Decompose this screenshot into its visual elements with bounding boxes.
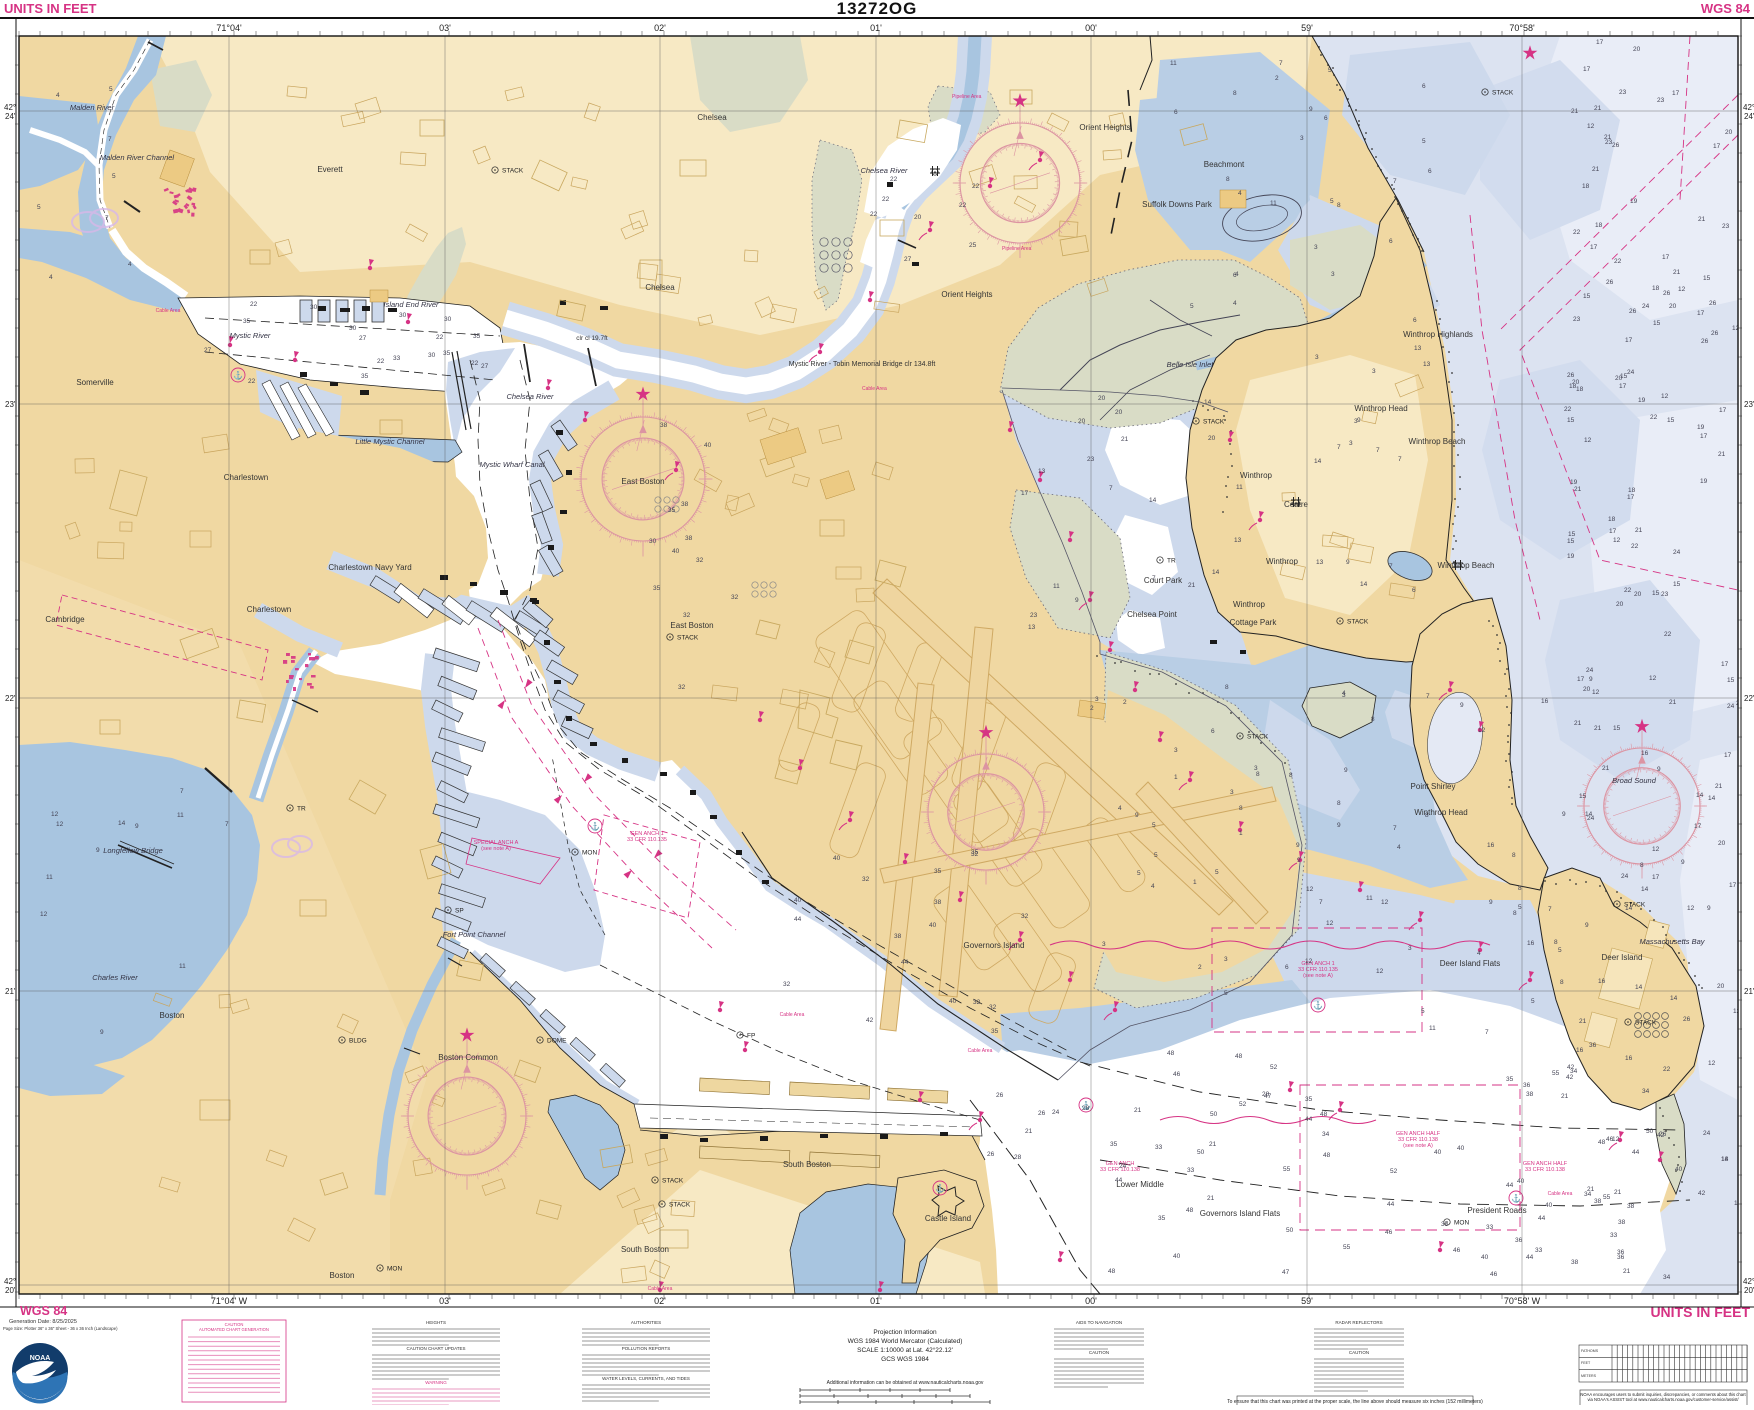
svg-text:15: 15 — [1703, 275, 1711, 282]
svg-text:8: 8 — [1513, 910, 1517, 917]
svg-text:12: 12 — [1592, 689, 1600, 696]
svg-text:6: 6 — [1428, 168, 1432, 175]
svg-text:7: 7 — [1389, 563, 1393, 570]
svg-text:28: 28 — [1262, 1091, 1270, 1098]
svg-text:16: 16 — [1641, 750, 1649, 757]
svg-text:7: 7 — [1398, 456, 1402, 463]
svg-text:FEET: FEET — [1581, 1361, 1591, 1365]
svg-text:Orient Heights: Orient Heights — [1079, 123, 1130, 132]
svg-text:40: 40 — [1545, 1202, 1553, 1209]
svg-text:33: 33 — [1610, 1232, 1618, 1239]
svg-text:19: 19 — [1697, 424, 1705, 431]
svg-text:02': 02' — [654, 23, 666, 33]
svg-text:24: 24 — [1052, 1109, 1060, 1116]
svg-text:9: 9 — [1489, 899, 1493, 906]
svg-text:46: 46 — [1173, 1071, 1181, 1078]
svg-text:Winthrop Head: Winthrop Head — [1414, 808, 1467, 817]
svg-text:12: 12 — [1478, 727, 1486, 734]
svg-text:32: 32 — [783, 981, 791, 988]
svg-text:16: 16 — [1625, 1055, 1633, 1062]
svg-text:3: 3 — [1331, 271, 1335, 278]
svg-text:36: 36 — [1515, 1237, 1523, 1244]
svg-text:40: 40 — [929, 922, 937, 929]
svg-text:33: 33 — [1486, 1224, 1494, 1231]
svg-text:22': 22' — [5, 694, 16, 703]
svg-text:13: 13 — [1028, 624, 1036, 631]
svg-text:40: 40 — [672, 548, 680, 555]
svg-text:7: 7 — [1426, 693, 1430, 700]
svg-text:2: 2 — [1198, 964, 1202, 971]
svg-text:18: 18 — [1595, 222, 1603, 229]
svg-text:14: 14 — [1696, 792, 1704, 799]
svg-text:26: 26 — [1663, 290, 1671, 297]
svg-text:40: 40 — [794, 897, 802, 904]
svg-text:38: 38 — [1571, 1259, 1579, 1266]
svg-text:STACK: STACK — [1247, 734, 1269, 741]
svg-text:22: 22 — [471, 360, 479, 367]
svg-text:9: 9 — [1296, 842, 1300, 849]
svg-text:42°: 42° — [1743, 1277, 1754, 1286]
svg-text:7: 7 — [1485, 1029, 1489, 1036]
svg-text:15: 15 — [1667, 417, 1675, 424]
svg-text:21: 21 — [1574, 720, 1582, 727]
svg-text:Cottage Park: Cottage Park — [1230, 618, 1278, 627]
svg-text:4: 4 — [1151, 883, 1155, 890]
svg-text:STACK: STACK — [677, 635, 699, 642]
svg-text:22: 22 — [1650, 414, 1658, 421]
svg-text:8: 8 — [1226, 176, 1230, 183]
svg-text:Governors Island: Governors Island — [964, 941, 1025, 950]
svg-text:STACK: STACK — [1635, 1020, 1657, 1027]
svg-text:17: 17 — [1619, 383, 1627, 390]
svg-text:4: 4 — [1238, 190, 1242, 197]
svg-text:14: 14 — [1149, 497, 1157, 504]
svg-text:38: 38 — [894, 933, 902, 940]
svg-text:23: 23 — [1605, 139, 1613, 146]
svg-text:AUTOMATED CHART GENERATION: AUTOMATED CHART GENERATION — [199, 1327, 269, 1332]
svg-text:20: 20 — [1725, 129, 1733, 136]
svg-text:9: 9 — [135, 823, 139, 830]
svg-text:STACK: STACK — [1203, 419, 1225, 426]
svg-text:33: 33 — [1187, 1167, 1195, 1174]
svg-text:Pipeline Area: Pipeline Area — [1002, 246, 1032, 252]
svg-text:1: 1 — [1174, 774, 1178, 781]
svg-text:9: 9 — [96, 847, 100, 854]
svg-text:9: 9 — [1589, 676, 1593, 683]
svg-text:21: 21 — [1715, 783, 1723, 790]
svg-text:35: 35 — [473, 333, 481, 340]
svg-text:3: 3 — [1224, 956, 1228, 963]
svg-text:22: 22 — [870, 211, 878, 218]
svg-text:35: 35 — [934, 868, 942, 875]
svg-text:42°: 42° — [4, 103, 16, 112]
svg-text:POLLUTION REPORTS: POLLUTION REPORTS — [622, 1346, 670, 1351]
svg-text:⚓: ⚓ — [935, 1183, 945, 1193]
svg-text:24': 24' — [1744, 112, 1754, 121]
svg-text:55: 55 — [1552, 1070, 1560, 1077]
svg-text:32: 32 — [678, 684, 686, 691]
svg-text:3: 3 — [1300, 135, 1304, 142]
svg-text:WGS 84: WGS 84 — [1701, 1, 1751, 16]
svg-text:8: 8 — [1289, 772, 1293, 779]
svg-text:6: 6 — [1233, 272, 1237, 279]
svg-text:Boston: Boston — [330, 1271, 355, 1280]
svg-text:⚓: ⚓ — [1511, 1193, 1521, 1203]
svg-text:5: 5 — [1531, 998, 1535, 1005]
svg-text:32: 32 — [1021, 913, 1029, 920]
svg-text:52: 52 — [1270, 1064, 1278, 1071]
svg-text:18: 18 — [1628, 487, 1636, 494]
svg-text:21: 21 — [1673, 269, 1681, 276]
svg-text:GCS WGS 1984: GCS WGS 1984 — [881, 1356, 929, 1363]
svg-text:21: 21 — [1718, 451, 1726, 458]
svg-text:5: 5 — [1328, 67, 1332, 74]
svg-text:Winthrop: Winthrop — [1233, 600, 1266, 609]
svg-text:15: 15 — [1583, 293, 1591, 300]
svg-text:4: 4 — [1477, 950, 1481, 957]
svg-text:13: 13 — [1414, 345, 1422, 352]
svg-text:55: 55 — [1603, 1194, 1611, 1201]
svg-text:Winthrop: Winthrop — [1266, 557, 1299, 566]
svg-text:22: 22 — [1573, 229, 1581, 236]
svg-text:21: 21 — [1207, 1195, 1215, 1202]
svg-text:8: 8 — [1337, 800, 1341, 807]
svg-text:01': 01' — [870, 23, 882, 33]
svg-text:24: 24 — [1642, 303, 1650, 310]
svg-text:20: 20 — [1098, 395, 1106, 402]
svg-text:36: 36 — [1617, 1254, 1625, 1261]
svg-text:23: 23 — [1573, 316, 1581, 323]
svg-text:19: 19 — [1567, 553, 1575, 560]
svg-text:Chelsea: Chelsea — [697, 113, 727, 122]
svg-text:9: 9 — [1562, 811, 1566, 818]
svg-text:22: 22 — [1631, 543, 1639, 550]
svg-text:14: 14 — [1670, 995, 1678, 1002]
svg-text:17: 17 — [1577, 676, 1585, 683]
svg-text:35: 35 — [361, 373, 369, 380]
svg-text:6: 6 — [1324, 115, 1328, 122]
svg-text:East Boston: East Boston — [621, 477, 664, 486]
svg-text:17: 17 — [1672, 90, 1680, 97]
svg-text:9: 9 — [1297, 857, 1301, 864]
svg-text:clr cl 19.7ft: clr cl 19.7ft — [576, 335, 608, 342]
svg-text:2: 2 — [1090, 705, 1094, 712]
svg-text:Orient Heights: Orient Heights — [941, 290, 992, 299]
svg-text:70°58' W: 70°58' W — [1504, 1296, 1541, 1306]
svg-text:via NOAA's ASSIST tool at www.: via NOAA's ASSIST tool at www.nauticalch… — [1587, 1397, 1739, 1402]
svg-text:23': 23' — [1744, 400, 1754, 409]
svg-text:11: 11 — [177, 812, 184, 819]
svg-text:Mystic River: Mystic River — [230, 331, 271, 340]
svg-text:⚓: ⚓ — [233, 370, 243, 380]
svg-text:Winthrop Beach: Winthrop Beach — [1409, 437, 1466, 446]
svg-text:WARNING: WARNING — [425, 1380, 447, 1385]
svg-text:Generation Date: 8/25/2025: Generation Date: 8/25/2025 — [9, 1319, 77, 1325]
svg-text:4: 4 — [49, 274, 53, 281]
svg-text:52: 52 — [1239, 1101, 1247, 1108]
svg-text:12: 12 — [1587, 123, 1595, 130]
svg-text:17: 17 — [1700, 433, 1708, 440]
svg-text:16: 16 — [1598, 978, 1606, 985]
svg-text:40: 40 — [1675, 1166, 1683, 1173]
svg-text:14: 14 — [1314, 458, 1322, 465]
svg-text:5: 5 — [1422, 138, 1426, 145]
svg-text:Additional information can be: Additional information can be obtained a… — [827, 1380, 984, 1386]
svg-text:21': 21' — [5, 987, 16, 996]
svg-text:AUTHORITIES: AUTHORITIES — [631, 1320, 661, 1325]
svg-text:13: 13 — [1316, 559, 1324, 566]
svg-text:18: 18 — [1608, 516, 1616, 523]
svg-text:34: 34 — [1322, 1131, 1330, 1138]
svg-text:26: 26 — [987, 1151, 995, 1158]
svg-text:6: 6 — [1285, 964, 1289, 971]
svg-text:Charlestown: Charlestown — [224, 473, 268, 482]
svg-text:AIDS TO NAVIGATION: AIDS TO NAVIGATION — [1076, 1320, 1122, 1325]
svg-text:20: 20 — [914, 214, 922, 221]
svg-text:21: 21 — [1561, 1093, 1569, 1100]
svg-text:16: 16 — [1576, 1047, 1584, 1054]
svg-text:23: 23 — [1661, 591, 1669, 598]
svg-text:3: 3 — [1230, 789, 1234, 796]
svg-text:34: 34 — [1663, 1274, 1671, 1281]
svg-text:5: 5 — [109, 86, 113, 93]
svg-text:WGS 84: WGS 84 — [20, 1304, 67, 1318]
svg-text:Belle Isle Inlet: Belle Isle Inlet — [1167, 360, 1215, 369]
svg-text:4: 4 — [1118, 805, 1122, 812]
svg-text:STACK: STACK — [1492, 90, 1514, 97]
svg-text:22: 22 — [890, 176, 898, 183]
svg-text:17: 17 — [1729, 882, 1737, 889]
svg-text:RADAR REFLECTORS: RADAR REFLECTORS — [1335, 1320, 1382, 1325]
svg-text:2: 2 — [1275, 75, 1279, 82]
svg-text:15: 15 — [1653, 320, 1661, 327]
svg-text:17: 17 — [1652, 874, 1660, 881]
svg-text:9: 9 — [1337, 822, 1341, 829]
svg-text:20: 20 — [1633, 46, 1641, 53]
svg-text:33: 33 — [393, 355, 401, 362]
svg-text:CAUTION: CAUTION — [1349, 1350, 1369, 1355]
svg-text:7: 7 — [1279, 60, 1283, 67]
svg-text:23: 23 — [1030, 612, 1038, 619]
svg-text:27: 27 — [204, 347, 212, 354]
svg-text:19: 19 — [1630, 198, 1638, 205]
svg-text:17: 17 — [1724, 752, 1732, 759]
svg-text:38: 38 — [934, 899, 942, 906]
svg-text:Charlestown Navy Yard: Charlestown Navy Yard — [328, 563, 411, 572]
svg-text:40: 40 — [1434, 1149, 1442, 1156]
svg-text:9: 9 — [1075, 597, 1079, 604]
svg-text:13: 13 — [1423, 361, 1431, 368]
svg-text:14: 14 — [1708, 795, 1716, 802]
svg-text:7: 7 — [180, 788, 184, 795]
svg-text:26: 26 — [1659, 1131, 1667, 1138]
svg-text:TR: TR — [1167, 558, 1176, 565]
svg-text:21: 21 — [1602, 765, 1610, 772]
svg-text:MON: MON — [1454, 1220, 1469, 1227]
svg-text:15: 15 — [1567, 417, 1575, 424]
svg-text:02': 02' — [654, 1296, 666, 1306]
svg-text:38: 38 — [1594, 1198, 1602, 1205]
svg-text:5: 5 — [1215, 869, 1219, 876]
svg-text:8: 8 — [1554, 939, 1558, 946]
svg-text:8: 8 — [1256, 771, 1260, 778]
svg-text:17: 17 — [1721, 661, 1729, 668]
svg-text:33 CFR 110.135: 33 CFR 110.135 — [627, 837, 667, 843]
svg-text:FP: FP — [747, 1033, 755, 1040]
svg-text:7: 7 — [1376, 447, 1380, 454]
svg-text:8: 8 — [1560, 979, 1564, 986]
svg-text:24': 24' — [5, 112, 16, 121]
svg-text:22: 22 — [1663, 1066, 1671, 1073]
svg-text:17: 17 — [1713, 143, 1721, 150]
svg-text:NOAA: NOAA — [30, 1355, 51, 1362]
svg-text:21: 21 — [1025, 1128, 1033, 1135]
svg-text:38: 38 — [681, 501, 689, 508]
svg-text:11: 11 — [179, 963, 186, 970]
svg-text:24: 24 — [1673, 549, 1681, 556]
svg-text:STACK: STACK — [662, 1178, 684, 1185]
svg-text:UNITS IN FEET: UNITS IN FEET — [1650, 1304, 1750, 1320]
svg-text:26: 26 — [1038, 1110, 1046, 1117]
svg-text:19: 19 — [1638, 397, 1646, 404]
svg-text:17: 17 — [1583, 66, 1591, 73]
svg-text:Winthrop: Winthrop — [1240, 471, 1273, 480]
svg-text:46: 46 — [1453, 1247, 1461, 1254]
svg-text:12: 12 — [1687, 905, 1695, 912]
svg-text:5: 5 — [1421, 1008, 1425, 1015]
svg-text:01': 01' — [870, 1296, 882, 1306]
svg-text:71°04': 71°04' — [216, 23, 242, 33]
svg-text:12: 12 — [1612, 1136, 1620, 1143]
svg-text:(see note A): (see note A) — [1303, 973, 1333, 979]
svg-text:Winthrop Head: Winthrop Head — [1354, 404, 1407, 413]
svg-text:22: 22 — [1624, 587, 1632, 594]
svg-text:46: 46 — [1385, 1229, 1393, 1236]
svg-text:13: 13 — [1234, 537, 1242, 544]
svg-text:50: 50 — [1197, 1149, 1205, 1156]
svg-text:5: 5 — [112, 173, 116, 180]
svg-text:11: 11 — [1053, 583, 1060, 590]
svg-text:Cable Area: Cable Area — [780, 1012, 805, 1018]
svg-text:17: 17 — [1662, 254, 1670, 261]
svg-text:9: 9 — [1707, 905, 1711, 912]
svg-text:47: 47 — [1282, 1269, 1290, 1276]
svg-text:55: 55 — [1283, 1166, 1291, 1173]
svg-text:26: 26 — [1701, 338, 1709, 345]
svg-text:STACK: STACK — [669, 1202, 691, 1209]
svg-text:35: 35 — [1305, 1096, 1313, 1103]
svg-text:20': 20' — [5, 1286, 16, 1295]
svg-text:Longfellow Bridge: Longfellow Bridge — [103, 846, 163, 855]
svg-text:44: 44 — [1387, 1201, 1395, 1208]
svg-text:Deer Island Flats: Deer Island Flats — [1440, 959, 1500, 968]
svg-text:(see note A): (see note A) — [1403, 1143, 1433, 1149]
svg-text:⚓: ⚓ — [1313, 1000, 1323, 1010]
svg-text:Chelsea Point: Chelsea Point — [1127, 610, 1178, 619]
svg-text:5: 5 — [1330, 198, 1334, 205]
svg-text:20: 20 — [1115, 409, 1123, 416]
svg-text:32: 32 — [862, 876, 870, 883]
svg-text:3: 3 — [1315, 354, 1319, 361]
svg-text:9: 9 — [1344, 767, 1348, 774]
svg-text:16: 16 — [1541, 698, 1549, 705]
svg-text:17: 17 — [1590, 244, 1598, 251]
svg-text:23: 23 — [1722, 223, 1730, 230]
svg-text:44: 44 — [1305, 1116, 1313, 1123]
svg-text:Chelsea River: Chelsea River — [860, 166, 908, 175]
svg-text:11: 11 — [1170, 60, 1177, 67]
svg-text:22: 22 — [250, 301, 258, 308]
svg-text:7: 7 — [105, 215, 109, 222]
svg-text:2: 2 — [1123, 699, 1127, 706]
svg-text:Boston Common: Boston Common — [438, 1053, 498, 1062]
svg-text:26: 26 — [1612, 142, 1620, 149]
svg-text:1: 1 — [1239, 830, 1243, 837]
svg-text:4: 4 — [128, 261, 132, 268]
svg-text:21: 21 — [1574, 486, 1582, 493]
svg-text:44: 44 — [1632, 1149, 1640, 1156]
svg-text:28: 28 — [1082, 1105, 1090, 1112]
svg-text:3: 3 — [1102, 941, 1106, 948]
svg-text:18: 18 — [1576, 386, 1584, 393]
svg-text:22: 22 — [248, 378, 256, 385]
svg-text:Projection Information: Projection Information — [873, 1329, 937, 1336]
svg-text:14: 14 — [1360, 581, 1368, 588]
svg-text:27: 27 — [904, 256, 912, 263]
svg-text:14: 14 — [1212, 569, 1220, 576]
svg-text:19: 19 — [1570, 479, 1578, 486]
svg-text:21: 21 — [1635, 527, 1643, 534]
svg-text:14: 14 — [1625, 905, 1633, 912]
svg-text:East Boston: East Boston — [670, 621, 713, 630]
svg-text:21: 21 — [1614, 1189, 1622, 1196]
svg-text:48: 48 — [1320, 1111, 1328, 1118]
svg-text:Malden River Channel: Malden River Channel — [100, 153, 175, 162]
svg-text:17: 17 — [1625, 337, 1633, 344]
svg-text:14: 14 — [1641, 886, 1649, 893]
svg-text:48: 48 — [1235, 1053, 1243, 1060]
svg-text:9: 9 — [1346, 559, 1350, 566]
svg-text:METERS: METERS — [1581, 1374, 1597, 1378]
svg-text:26: 26 — [1683, 1016, 1691, 1023]
svg-text:42°: 42° — [1743, 103, 1754, 112]
svg-text:4: 4 — [1397, 844, 1401, 851]
svg-text:Mystic Wharf Canal: Mystic Wharf Canal — [479, 460, 544, 469]
svg-text:MON: MON — [582, 850, 597, 857]
svg-text:21: 21 — [1209, 1141, 1217, 1148]
svg-text:26: 26 — [1711, 330, 1719, 337]
svg-text:22: 22 — [972, 183, 980, 190]
svg-text:WATER LEVELS, CURRENTS, AND TI: WATER LEVELS, CURRENTS, AND TIDES — [602, 1376, 690, 1381]
svg-text:48: 48 — [1108, 1268, 1116, 1275]
svg-text:38: 38 — [660, 422, 668, 429]
svg-text:40: 40 — [1457, 1145, 1465, 1152]
svg-text:8: 8 — [1371, 716, 1375, 723]
svg-text:44: 44 — [1506, 1182, 1514, 1189]
svg-text:35: 35 — [668, 507, 676, 514]
svg-text:35: 35 — [1441, 1221, 1449, 1228]
svg-text:President Roads: President Roads — [1467, 1206, 1526, 1215]
svg-text:Somerville: Somerville — [76, 378, 114, 387]
svg-text:UNITS IN FEET: UNITS IN FEET — [4, 1, 97, 16]
svg-text:40: 40 — [833, 855, 841, 862]
svg-text:34: 34 — [1642, 1088, 1650, 1095]
svg-text:6: 6 — [1412, 587, 1416, 594]
svg-text:3: 3 — [1349, 440, 1353, 447]
svg-text:3: 3 — [1408, 945, 1412, 952]
svg-text:44: 44 — [1538, 1215, 1546, 1222]
svg-text:8: 8 — [1640, 862, 1644, 869]
